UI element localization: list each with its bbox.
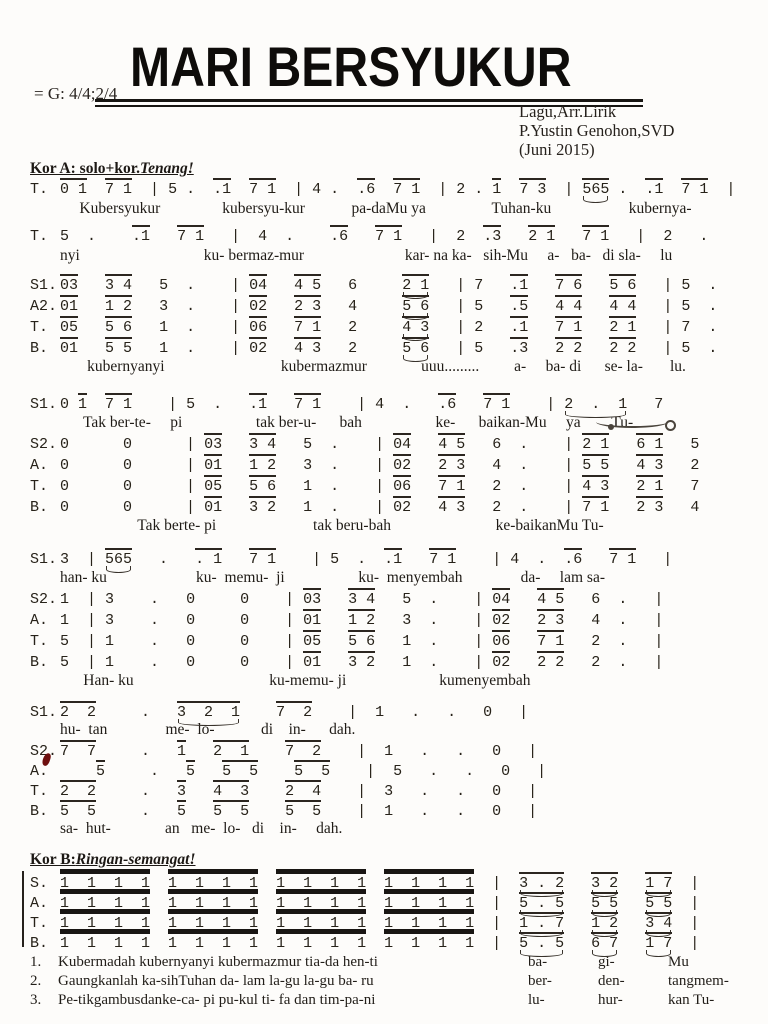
note-group: 05 (303, 630, 321, 652)
note-group: 5 (159, 276, 168, 296)
note-group (465, 498, 492, 518)
note-group: . (519, 550, 564, 570)
note-group: 0 (123, 477, 132, 497)
note-group (375, 180, 393, 200)
note-group: 04 (393, 433, 411, 455)
note-group: 5 (60, 632, 69, 652)
note-group: | (672, 894, 699, 914)
note-group: | (492, 703, 528, 723)
note-group (465, 456, 492, 476)
note-group (78, 339, 105, 359)
note-group: 5 6 (348, 630, 375, 652)
note-group (627, 395, 654, 415)
note-group: 4 3 (438, 496, 465, 518)
note-group: . (600, 653, 627, 673)
note-group (483, 318, 510, 338)
note-group (195, 632, 240, 652)
note-group: 4 4 (555, 295, 582, 317)
music-system: Kor A: solo+kor.Tenang!T.0 1 7 1 | 5 . .… (30, 160, 760, 219)
note-group (267, 318, 294, 338)
note-group: 4 3 (294, 337, 321, 359)
note-group: 1 (177, 740, 186, 762)
note-group (510, 590, 537, 610)
section-heading-label: Kor B: (30, 851, 76, 868)
note-group (582, 276, 609, 296)
note-group (663, 498, 690, 518)
note-group (195, 653, 240, 673)
note-group: . (312, 498, 339, 518)
note-group: .1 (384, 548, 402, 570)
note-group (69, 435, 123, 455)
note-group (348, 227, 375, 247)
notation-row: A.1 | 3 . 0 0 | 01 1 2 3 . | 02 2 3 4 . … (30, 609, 760, 630)
note-group: 7 2 (285, 740, 321, 762)
note-group: | (195, 339, 249, 359)
notation-row: B.5 5 . 5 5 5 5 5 | 1 . . 0 | (30, 800, 760, 820)
note-group: 2 (492, 498, 501, 518)
note-group: 7 6 (555, 274, 582, 296)
note-group: 4 5 (294, 274, 321, 296)
note-group: 1 1 1 1 (384, 929, 474, 954)
note-group (618, 934, 645, 954)
note-group: 01 (204, 454, 222, 476)
notation-row: T.0 1 7 1 | 5 . .1 7 1 | 4 . .6 7 1 | 2 … (30, 178, 760, 200)
note-group: 2 (690, 456, 699, 476)
note-group: 1 (492, 178, 501, 200)
notation-row: S1.2 2 . 3 2 1 7 2 | 1 . . 0 | (30, 701, 760, 721)
note-group (321, 276, 348, 296)
credit-line-3: (Juni 2015) (519, 140, 674, 159)
note-group: 5 5 (294, 760, 330, 782)
note-group: | (528, 456, 582, 476)
note-group (222, 550, 249, 570)
note-group: 2 2 (60, 780, 96, 802)
note-group: 2 3 (537, 609, 564, 631)
voice-label: A2. (30, 297, 60, 317)
note-group (564, 632, 591, 652)
note-group: 0 (123, 435, 132, 455)
note-group: 1 (159, 318, 168, 338)
note-group (321, 632, 348, 652)
note-group: 7 1 (105, 178, 132, 200)
note-group: 03 (204, 433, 222, 455)
note-group: 1 (402, 632, 411, 652)
note-group: | (474, 874, 519, 894)
lyric-row: hu- tan me- lo- di in- dah. (30, 721, 760, 740)
verse-tail-word: Mu (668, 953, 738, 971)
note-group (78, 297, 105, 317)
note-group: 2 3 (294, 295, 321, 317)
note-group: 3 (177, 780, 186, 802)
notation-row: S2.1 | 3 . 0 0 | 03 3 4 5 . | 04 4 5 6 .… (30, 588, 760, 609)
note-group: 2 1 (402, 274, 429, 296)
note-group: | (501, 802, 537, 822)
note-group: | (438, 653, 492, 673)
note-group (366, 934, 384, 954)
note-group: 6 7 (591, 932, 618, 954)
note-group: 1 . 7 (519, 912, 564, 934)
note-group: 0 (123, 456, 132, 476)
note-group: . (411, 611, 438, 631)
note-group: 1 (105, 653, 114, 673)
verse-text: Pe-tikgambusdanke-ca- pi pu-kul ti- fa d… (58, 991, 528, 1009)
voice-label: B. (30, 498, 60, 518)
verse-tail-word: ber- (528, 972, 598, 990)
note-group: 5 . 5 (519, 892, 564, 914)
notation-row: B.0 0 | 01 3 2 1 . | 02 4 3 2 . | 7 1 2 … (30, 496, 760, 517)
note-group: 1 1 1 1 (168, 929, 258, 954)
note-group: | (528, 498, 582, 518)
note-group (528, 276, 555, 296)
note-group: 4 5 (537, 588, 564, 610)
note-group: 3 2 1 (177, 701, 240, 723)
pen-annotation (596, 416, 668, 428)
note-group: 6 (348, 276, 357, 296)
note-group: 0 (240, 653, 249, 673)
notation-row: B.01 5 5 1 . | 02 4 3 2 5 6 | 5 .3 2 2 2… (30, 337, 760, 358)
voice-label: S2. (30, 590, 60, 610)
note-group: 1 (78, 393, 87, 415)
note-group: 6 (591, 590, 600, 610)
note-group (609, 477, 636, 497)
note-group (483, 276, 510, 296)
note-group: 5 . . 0 (393, 762, 510, 782)
note-group: 1 (303, 498, 312, 518)
notation-row: T.2 2 . 3 4 3 2 4 | 3 . . 0 | (30, 780, 760, 800)
note-group: 3 4 (348, 588, 375, 610)
note-group: | (429, 276, 474, 296)
note-group: 0 (60, 395, 78, 415)
note-group: 7 3 (519, 178, 546, 200)
notation-row: A. 5 . 5 5 5 5 5 | 5 . . 0 | (30, 760, 760, 780)
note-group (150, 874, 168, 894)
note-group: 0 (186, 611, 195, 631)
note-group: | (546, 180, 582, 200)
note-group: 4 (591, 611, 600, 631)
voice-label: S1. (30, 703, 60, 723)
note-group: 7 1 (609, 548, 636, 570)
note-group: 2 3 (438, 454, 465, 476)
note-group (582, 318, 609, 338)
music-system: S1.2 2 . 3 2 1 7 2 | 1 . . 0 |hu- tan me… (30, 701, 760, 839)
note-group: . (600, 611, 627, 631)
note-group (186, 742, 213, 762)
note-group: 3 (402, 611, 411, 631)
note-group: 2 2 (60, 701, 96, 723)
note-group (411, 477, 438, 497)
note-group: | (132, 180, 168, 200)
verse-number: 2. (30, 972, 58, 990)
tempo-marking: Tenang! (140, 160, 194, 177)
note-group: | (339, 477, 393, 497)
note-group: 5 6 (402, 337, 429, 359)
note-group (258, 874, 276, 894)
note-group: 1 (60, 590, 69, 610)
note-group: | (636, 297, 681, 317)
note-group: 5 5 (645, 892, 672, 914)
note-group: 0 (240, 632, 249, 652)
note-group: 1 . . 0 (375, 703, 492, 723)
note-group: 04 (492, 588, 510, 610)
note-group (258, 894, 276, 914)
note-group: | (510, 395, 564, 415)
note-group: 3 . 2 (519, 872, 564, 894)
note-group: | (438, 590, 492, 610)
note-group (195, 762, 222, 782)
note-group: | (321, 782, 384, 802)
note-group (69, 498, 123, 518)
note-group: 5 (303, 435, 312, 455)
note-group (267, 395, 294, 415)
note-group: | (321, 802, 384, 822)
note-group (555, 227, 582, 247)
note-group (582, 339, 609, 359)
note-group (564, 874, 591, 894)
note-group: 0 (60, 477, 69, 497)
music-system: S1.0 1 7 1 | 5 . .1 7 1 | 4 . .6 7 1 | 2… (30, 393, 760, 536)
note-group: | (204, 227, 258, 247)
note-group: . (312, 456, 339, 476)
note-group: . (267, 227, 330, 247)
note-group: 03 (303, 588, 321, 610)
note-group: 2 1 (528, 225, 555, 247)
note-group (375, 590, 402, 610)
note-group: 1 2 (348, 609, 375, 631)
note-group: 7 1 (681, 178, 708, 200)
note-group: . (168, 318, 195, 338)
note-group (357, 339, 402, 359)
note-group: | (627, 632, 663, 652)
note-group: .3 (483, 225, 501, 247)
note-group: | (474, 914, 519, 934)
note-group (618, 894, 645, 914)
note-group: 5 5 (213, 800, 249, 822)
note-group: 5 (60, 653, 69, 673)
note-group (510, 632, 537, 652)
note-group (78, 276, 105, 296)
note-group (528, 297, 555, 317)
note-group (69, 456, 123, 476)
note-group: 3 (60, 550, 69, 570)
note-group: 0 (240, 611, 249, 631)
note-group: 4 (492, 456, 501, 476)
voice-label: B. (30, 802, 60, 822)
note-group (276, 477, 303, 497)
note-group: 7 (690, 477, 699, 497)
note-group: | (429, 339, 474, 359)
note-group: | (339, 435, 393, 455)
note-group: . (132, 550, 195, 570)
note-group: | (195, 297, 249, 317)
note-group: 0 (60, 456, 69, 476)
note-group: . (672, 227, 708, 247)
note-group (564, 934, 591, 954)
note-group: . (96, 703, 177, 723)
note-group: 03 (60, 274, 78, 296)
note-group: 0 (60, 498, 69, 518)
note-group: 5 6 (402, 295, 429, 317)
note-group (411, 435, 438, 455)
note-group: 4 (258, 227, 267, 247)
note-group: . (96, 802, 177, 822)
note-group: . (69, 227, 132, 247)
note-group (240, 703, 276, 723)
note-group: 2 (492, 477, 501, 497)
note-group (564, 894, 591, 914)
section-heading-label: Kor A: solo+kor. (30, 160, 140, 177)
note-group: .1 (510, 316, 528, 338)
note-group: 0 (60, 435, 69, 455)
note-group: 5 (681, 297, 690, 317)
note-group: 3 4 (249, 433, 276, 455)
note-group: | (69, 590, 105, 610)
note-group (222, 477, 249, 497)
note-group: 7 1 (429, 548, 456, 570)
note-group (375, 653, 402, 673)
credit-line-2: P.Yustin Genohon,SVD (519, 121, 674, 140)
note-group: | (510, 762, 546, 782)
verse-row: 2.Gaungkanlah ka-sihTuhan da- lam la-gu … (30, 972, 760, 991)
note-group: 01 (303, 609, 321, 631)
note-group: 3 2 (249, 496, 276, 518)
note-group (375, 632, 402, 652)
music-system: S1.3 | 565 . . 1 7 1 | 5 . .1 7 1 | 4 . … (30, 548, 760, 691)
note-group (564, 611, 591, 631)
lyric-row: Han- ku ku-memu- ji kumenyembah (30, 672, 760, 691)
note-group (357, 276, 402, 296)
note-group: 5 (330, 550, 339, 570)
note-group: 4 5 (438, 433, 465, 455)
note-group (69, 477, 123, 497)
note-group: . (114, 632, 186, 652)
note-group: 4 3 (402, 316, 429, 338)
note-group: 1 (105, 632, 114, 652)
note-group: 2 2 (555, 337, 582, 359)
note-group (483, 339, 510, 359)
note-group (222, 456, 249, 476)
note-group (87, 180, 105, 200)
voice-label: S1. (30, 550, 60, 570)
voice-label: S1. (30, 276, 60, 296)
notation-row: A.1 1 1 1 1 1 1 1 1 1 1 1 1 1 1 1 | 5 . … (30, 889, 760, 909)
note-group: 6 1 (636, 433, 663, 455)
note-group: 3 (159, 297, 168, 317)
lyric-row: han- ku ku- memu- ji ku- menyembah da- l… (30, 569, 760, 588)
note-group: 7 1 (438, 475, 465, 497)
note-group (609, 435, 636, 455)
note-group: 2 1 (636, 475, 663, 497)
note-group: 7 1 (582, 496, 609, 518)
note-group: | (528, 477, 582, 497)
note-group: | (429, 297, 474, 317)
note-group: | (501, 742, 537, 762)
note-group: | (321, 395, 375, 415)
note-group: 02 (492, 609, 510, 631)
note-group (510, 611, 537, 631)
note-group: | (636, 318, 681, 338)
section-heading: Kor A: solo+kor.Tenang! (30, 160, 760, 178)
note-group (150, 227, 177, 247)
note-group (150, 894, 168, 914)
note-group (132, 318, 159, 338)
note-group: 7 1 (294, 393, 321, 415)
note-group: | (69, 550, 105, 570)
note-group: | (474, 934, 519, 954)
note-group: 4 (348, 297, 357, 317)
note-group: 5 (60, 227, 69, 247)
note-group: 2 (591, 653, 600, 673)
note-group: 4 3 (213, 780, 249, 802)
note-group: 7 2 (276, 701, 312, 723)
note-group (321, 318, 348, 338)
note-group (186, 782, 213, 802)
note-group (132, 297, 159, 317)
note-group (465, 435, 492, 455)
note-group: 3 (105, 590, 114, 610)
note-group: 2 (591, 632, 600, 652)
notation-row: S2.7 7 . 1 2 1 7 2 | 1 . . 0 | (30, 740, 760, 760)
note-group: . (321, 180, 357, 200)
note-group: 7 (681, 318, 690, 338)
note-group: .1 (645, 178, 663, 200)
note-group: 5 (402, 590, 411, 610)
note-group: | (627, 590, 663, 610)
note-group: 7 1 (375, 225, 402, 247)
section-heading: Kor B:Ringan-semangat! (30, 851, 760, 869)
note-group: | (132, 395, 186, 415)
note-group: 06 (249, 316, 267, 338)
note-group (465, 477, 492, 497)
notation-row: S.1 1 1 1 1 1 1 1 1 1 1 1 1 1 1 1 | 3 . … (30, 869, 760, 889)
notation-row: T.05 5 6 1 . | 06 7 1 2 4 3 | 2 .1 7 1 2… (30, 316, 760, 337)
note-group: 7 (474, 276, 483, 296)
note-group: | (402, 227, 456, 247)
note-group: | (708, 180, 735, 200)
voice-label: T. (30, 227, 60, 247)
note-group: 1 . . 0 (384, 742, 501, 762)
note-group: 7 1 (105, 393, 132, 415)
music-score: Kor A: solo+kor.Tenang!T.0 1 7 1 | 5 . .… (30, 160, 760, 1010)
note-group: . (690, 276, 717, 296)
note-group: 4 3 (636, 454, 663, 476)
note-group (276, 498, 303, 518)
note-group: 1 (402, 653, 411, 673)
note-group: 3 (105, 611, 114, 631)
note-group: 2 1 (213, 740, 249, 762)
verse-tail-word: den- (598, 972, 668, 990)
note-group (663, 435, 690, 455)
note-group: .1 (249, 393, 267, 415)
verse-tail-word: hur- (598, 991, 668, 1009)
note-group (609, 498, 636, 518)
note-group: 05 (204, 475, 222, 497)
lyric-row: Kubersyukur kubersyu-kur pa-daMu ya Tuha… (30, 200, 760, 219)
note-group: .5 (510, 295, 528, 317)
note-group: 1 7 (645, 932, 672, 954)
note-group (276, 456, 303, 476)
note-group: 5 6 (249, 475, 276, 497)
note-group (663, 456, 690, 476)
tempo-marking: Ringan-semangat! (76, 851, 196, 868)
note-group: 5 (681, 339, 690, 359)
note-group: 3 2 (591, 872, 618, 894)
note-group: 5 (177, 800, 186, 822)
note-group: 7 1 (537, 630, 564, 652)
note-group: 1 2 (591, 912, 618, 934)
note-group: | (69, 632, 105, 652)
note-group: 5 . 5 (519, 932, 564, 954)
note-group: . (339, 550, 384, 570)
